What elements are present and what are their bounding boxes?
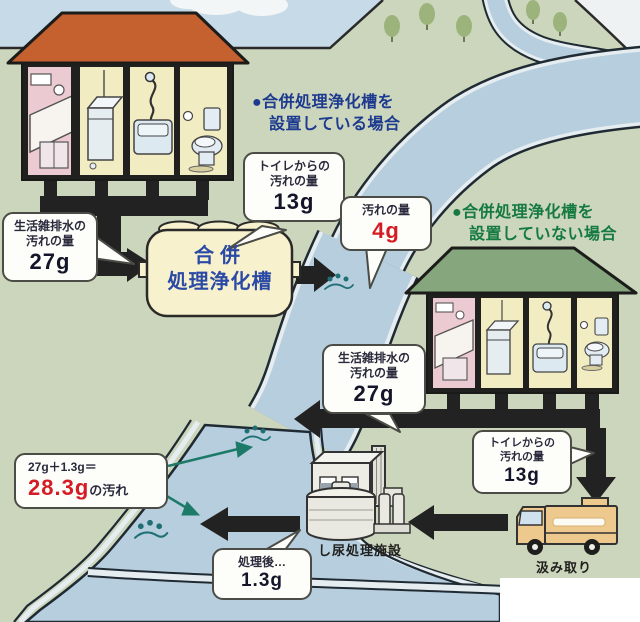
house-with-tank [8, 13, 248, 180]
bathtub-icon [529, 298, 571, 388]
bathtub-icon [130, 67, 174, 175]
case-with-tank-title: ●合併処理浄化槽を 設置している場合 [252, 92, 452, 135]
callout-graywater-house2: 生活雑排水の 汚れの量 27g [322, 344, 426, 414]
house-without-tank [406, 248, 636, 393]
callout-after-treatment: 処理後… 1.3g [212, 548, 312, 600]
callout-toilet-house1: トイレからの 汚れの量 13g [243, 152, 345, 222]
toilet-icon [577, 298, 612, 388]
case-without-tank-title: ●合併処理浄化槽を 設置していない場合 [452, 202, 640, 245]
treatment-facility-label: し尿処理施設 [300, 540, 420, 559]
washing-machine-icon [80, 67, 124, 175]
callout-treated-outflow: 汚れの量 4g [340, 196, 432, 251]
callout-graywater-house1: 生活雑排水の 汚れの量 27g [2, 212, 98, 282]
kitchen-icon [28, 67, 74, 175]
truck-window [519, 511, 542, 525]
toilet-icon [180, 67, 227, 175]
septic-tank-label: 合併 処理浄化槽 [150, 243, 290, 295]
diagram-canvas: ●合併処理浄化槽を 設置している場合 ●合併処理浄化槽を 設置していない場合 合… [0, 0, 640, 622]
callout-toilet-house2: トイレからの 汚れの量 13g [472, 430, 572, 494]
truck-label: 汲み取り [514, 557, 614, 576]
bullet-icon: ● [452, 204, 462, 221]
truck-logo [553, 518, 605, 526]
washing-machine-icon [481, 298, 523, 388]
kitchen-icon [433, 298, 475, 388]
callout-river-total: 27g＋1.3g＝ 28.3gの汚れ [14, 453, 168, 509]
blank-area [500, 578, 640, 622]
bullet-icon: ● [252, 94, 262, 111]
